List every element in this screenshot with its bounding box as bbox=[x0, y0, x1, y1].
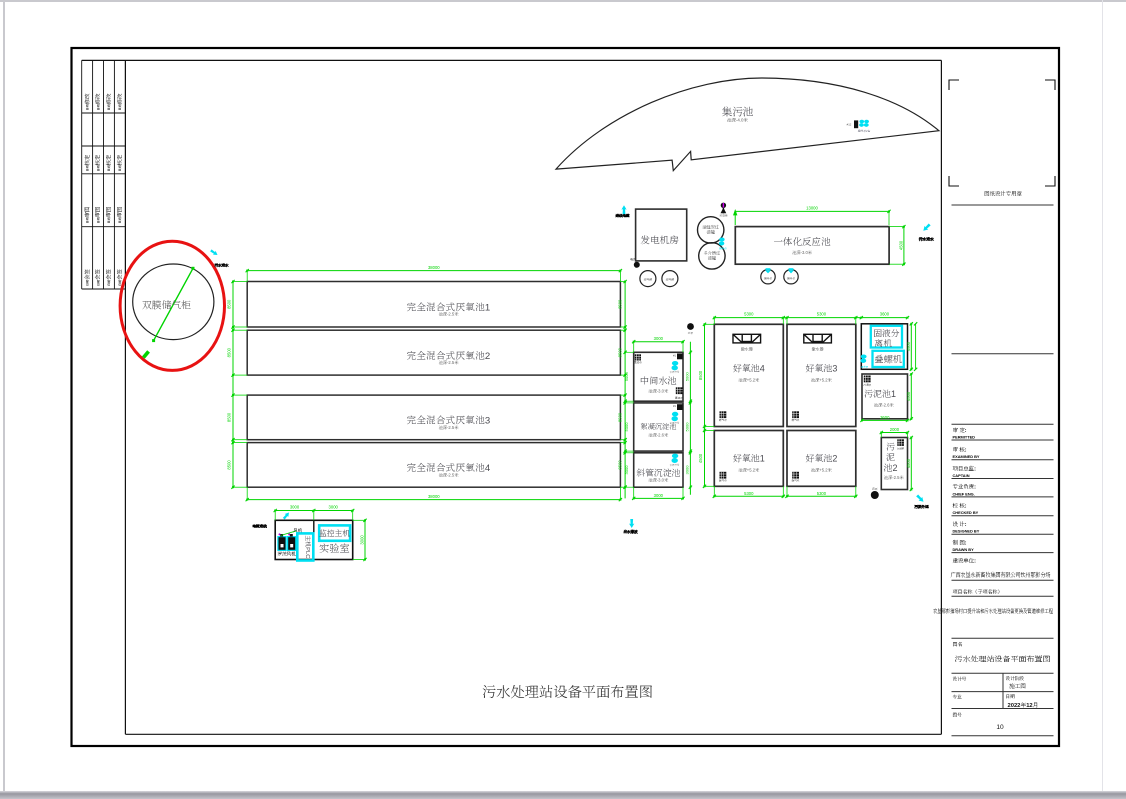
svg-text:滤罐: 滤罐 bbox=[708, 256, 717, 261]
svg-text:4500: 4500 bbox=[906, 458, 911, 468]
svg-text:13000: 13000 bbox=[806, 206, 818, 211]
svg-text:日期: 日期 bbox=[85, 280, 89, 286]
svg-text:图纸设计专用章: 图纸设计专用章 bbox=[984, 191, 1022, 198]
svg-text:3600: 3600 bbox=[880, 312, 890, 317]
svg-text:污水处理站设备平面布置图: 污水处理站设备平面布置图 bbox=[482, 684, 653, 701]
svg-text:项目总监:: 项目总监: bbox=[953, 465, 977, 472]
svg-text:中间水池: 中间水池 bbox=[640, 376, 677, 386]
svg-text:审图: 审图 bbox=[117, 206, 124, 217]
svg-text:设计号: 设计号 bbox=[952, 676, 967, 682]
svg-text:8500: 8500 bbox=[618, 347, 623, 357]
svg-text:沼气罐: 沼气罐 bbox=[644, 277, 653, 281]
svg-text:会签: 会签 bbox=[117, 269, 124, 280]
svg-text:污泵: 污泵 bbox=[871, 487, 878, 491]
svg-text:8500: 8500 bbox=[618, 460, 623, 470]
svg-text:曝气泵: 曝气泵 bbox=[719, 478, 727, 482]
svg-text:3000: 3000 bbox=[654, 493, 664, 498]
svg-text:#1: #1 bbox=[673, 355, 676, 358]
svg-text:8500: 8500 bbox=[618, 299, 623, 309]
svg-text:池深-3.0米: 池深-3.0米 bbox=[792, 250, 813, 255]
svg-text:日期: 日期 bbox=[107, 104, 111, 110]
svg-text:污泵: 污泵 bbox=[687, 331, 694, 335]
svg-text:池深-4.0米: 池深-4.0米 bbox=[727, 117, 748, 123]
svg-text:日期: 日期 bbox=[118, 104, 122, 110]
svg-text:曝气泵: 曝气泵 bbox=[792, 478, 800, 482]
svg-text:核定: 核定 bbox=[106, 154, 113, 165]
svg-text:一体化反应池: 一体化反应池 bbox=[773, 236, 831, 248]
svg-text:泥: 泥 bbox=[886, 453, 895, 463]
svg-text:图名: 图名 bbox=[953, 641, 963, 648]
svg-text:审图: 审图 bbox=[95, 206, 102, 217]
svg-text:提升泵: 提升泵 bbox=[718, 247, 727, 251]
svg-text:集污池: 集污池 bbox=[722, 105, 754, 118]
svg-text:3000: 3000 bbox=[329, 505, 339, 510]
svg-text:池深-2.6米: 池深-2.6米 bbox=[648, 433, 669, 438]
svg-text:池深-2.5米: 池深-2.5米 bbox=[439, 360, 460, 365]
svg-text:好氧池2: 好氧池2 bbox=[805, 454, 837, 464]
svg-text:5300: 5300 bbox=[744, 491, 754, 496]
svg-text:3000: 3000 bbox=[654, 336, 664, 341]
svg-text:4500: 4500 bbox=[698, 453, 703, 463]
svg-text:修改: 修改 bbox=[95, 93, 102, 104]
svg-text:5000: 5000 bbox=[624, 371, 629, 381]
svg-text:农垦那彭猪场村口提升站和污水处理站设备更换及管道维修工程: 农垦那彭猪场村口提升站和污水处理站设备更换及管道维修工程 bbox=[933, 607, 1053, 615]
svg-text:污水进水: 污水进水 bbox=[919, 237, 934, 242]
svg-text:审 核:: 审 核: bbox=[953, 447, 967, 454]
svg-text:污水处理站设备平面布置图: 污水处理站设备平面布置图 bbox=[955, 655, 1052, 664]
svg-text:好氧池4: 好氧池4 bbox=[733, 364, 765, 374]
svg-text:日期: 日期 bbox=[96, 104, 100, 110]
svg-text:DESIGNED BY: DESIGNED BY bbox=[953, 529, 980, 534]
svg-text:提升泵: 提升泵 bbox=[786, 276, 796, 280]
svg-text:水泵型号: 水泵型号 bbox=[669, 421, 680, 425]
svg-text:提升泵2台: 提升泵2台 bbox=[857, 129, 871, 133]
svg-text:日期: 日期 bbox=[96, 217, 100, 223]
svg-text:进线电缆: 进线电缆 bbox=[615, 213, 630, 218]
svg-text:沼气罐: 沼气罐 bbox=[666, 277, 675, 281]
svg-text:好氧池3: 好氧池3 bbox=[805, 364, 837, 374]
svg-text:日期: 日期 bbox=[96, 165, 100, 171]
svg-text:#12: #12 bbox=[847, 122, 852, 126]
svg-text:池深+5.2米: 池深+5.2米 bbox=[738, 378, 760, 383]
svg-text:8500: 8500 bbox=[227, 299, 232, 309]
svg-text:池深+5.2米: 池深+5.2米 bbox=[811, 468, 833, 473]
svg-text:好氧池1: 好氧池1 bbox=[733, 454, 765, 464]
svg-text:8500: 8500 bbox=[227, 347, 232, 357]
svg-text:污泥池1: 污泥池1 bbox=[864, 389, 896, 399]
svg-text:污: 污 bbox=[886, 442, 895, 452]
svg-text:会签: 会签 bbox=[95, 269, 102, 280]
svg-text:日期: 日期 bbox=[96, 280, 100, 286]
svg-text:监控主机: 监控主机 bbox=[319, 529, 350, 538]
svg-text:5300: 5300 bbox=[817, 491, 827, 496]
svg-text:双膜储气柜: 双膜储气柜 bbox=[142, 300, 191, 312]
svg-text:CAPTAIN: CAPTAIN bbox=[953, 473, 970, 478]
svg-text:5300: 5300 bbox=[817, 312, 827, 317]
svg-text:污泥泵: 污泥泵 bbox=[896, 446, 905, 450]
svg-text:修改: 修改 bbox=[84, 93, 91, 104]
svg-text:5000: 5000 bbox=[684, 371, 689, 381]
svg-text:回流泵: 回流泵 bbox=[675, 396, 683, 400]
svg-text:撒水器: 撒水器 bbox=[740, 347, 753, 352]
svg-text:曝气泵: 曝气泵 bbox=[792, 418, 800, 422]
svg-text:校 核:: 校 核: bbox=[953, 503, 967, 510]
svg-text:核定: 核定 bbox=[84, 154, 91, 165]
svg-text:实验室: 实验室 bbox=[319, 543, 350, 555]
svg-text:8500: 8500 bbox=[227, 460, 232, 470]
svg-text:离机: 离机 bbox=[875, 338, 893, 348]
svg-text:施工图: 施工图 bbox=[1009, 683, 1026, 690]
svg-text:核定: 核定 bbox=[117, 154, 124, 165]
svg-text:#1: #1 bbox=[673, 405, 676, 408]
svg-text:日期: 日期 bbox=[85, 104, 89, 110]
svg-text:3000: 3000 bbox=[624, 465, 629, 475]
svg-text:罗茨风机: 罗茨风机 bbox=[276, 551, 296, 557]
svg-text:会签: 会签 bbox=[106, 269, 113, 280]
svg-text:CHECKED BY: CHECKED BY bbox=[953, 510, 979, 515]
svg-text:电缆进线: 电缆进线 bbox=[252, 523, 267, 528]
svg-text:会签: 会签 bbox=[84, 269, 91, 280]
svg-text:EXAMINED BY: EXAMINED BY bbox=[953, 454, 980, 459]
svg-text:8500: 8500 bbox=[698, 370, 703, 380]
svg-text:提升泵: 提升泵 bbox=[860, 365, 869, 369]
svg-text:日期: 日期 bbox=[107, 165, 111, 171]
svg-text:4500: 4500 bbox=[898, 240, 903, 250]
svg-text:DRAWN BY: DRAWN BY bbox=[953, 547, 975, 552]
svg-text:38000: 38000 bbox=[428, 494, 440, 499]
svg-text:3600: 3600 bbox=[880, 415, 890, 420]
svg-text:放空阀: 放空阀 bbox=[719, 214, 728, 218]
svg-text:3000: 3000 bbox=[684, 465, 689, 475]
svg-text:电表: 电表 bbox=[630, 257, 636, 261]
svg-text:池深-2.5米: 池深-2.5米 bbox=[439, 472, 460, 477]
svg-text:5000: 5000 bbox=[624, 422, 629, 432]
svg-text:出水排放: 出水排放 bbox=[623, 529, 638, 534]
svg-text:日期: 日期 bbox=[85, 217, 89, 223]
svg-text:修改: 修改 bbox=[117, 93, 124, 104]
svg-text:池深-2.5米: 池深-2.5米 bbox=[884, 475, 905, 480]
svg-text:池2: 池2 bbox=[883, 463, 897, 473]
svg-text:建设单位:: 建设单位: bbox=[953, 558, 977, 565]
svg-text:日期: 日期 bbox=[118, 165, 122, 171]
svg-text:水泵型号: 水泵型号 bbox=[669, 463, 680, 467]
svg-text:日期: 日期 bbox=[107, 280, 111, 286]
svg-text:池深-2.6米: 池深-2.6米 bbox=[874, 403, 895, 408]
svg-text:CHIEF ENG.: CHIEF ENG. bbox=[953, 491, 975, 496]
svg-text:滤罐: 滤罐 bbox=[707, 230, 716, 235]
svg-text:发电机房: 发电机房 bbox=[640, 234, 679, 246]
svg-text:核定: 核定 bbox=[95, 154, 102, 165]
svg-text:设计阶段: 设计阶段 bbox=[1005, 675, 1025, 681]
svg-text:10: 10 bbox=[996, 724, 1004, 731]
svg-text:5300: 5300 bbox=[744, 312, 754, 317]
svg-text:撒水器: 撒水器 bbox=[811, 347, 824, 352]
svg-text:污水进水: 污水进水 bbox=[215, 263, 229, 268]
svg-text:38000: 38000 bbox=[428, 265, 440, 270]
svg-text:回流泵: 回流泵 bbox=[634, 360, 642, 364]
svg-text:叠螺机: 叠螺机 bbox=[874, 355, 902, 365]
svg-text:池深-3.0米: 池深-3.0米 bbox=[648, 477, 669, 482]
svg-text:图号: 图号 bbox=[953, 712, 963, 718]
svg-text:主机PLC: 主机PLC bbox=[304, 535, 312, 559]
svg-text:4500: 4500 bbox=[906, 341, 911, 351]
svg-text:污泥外运: 污泥外运 bbox=[914, 504, 929, 509]
svg-text:日期: 日期 bbox=[118, 217, 122, 223]
svg-text:日期: 日期 bbox=[1006, 694, 1016, 699]
svg-text:池深-3.0米: 池深-3.0米 bbox=[648, 389, 669, 394]
svg-text:PERMITTED: PERMITTED bbox=[953, 434, 976, 439]
svg-text:专业: 专业 bbox=[953, 694, 963, 700]
svg-text:制 图:: 制 图: bbox=[953, 539, 967, 546]
svg-text:修改: 修改 bbox=[106, 93, 113, 104]
svg-text:日期: 日期 bbox=[85, 165, 89, 171]
svg-text:专业负责:: 专业负责: bbox=[953, 484, 977, 491]
svg-text:3000: 3000 bbox=[360, 535, 365, 545]
svg-text:3000: 3000 bbox=[290, 505, 300, 510]
svg-text:8500: 8500 bbox=[227, 412, 232, 422]
svg-text:5000: 5000 bbox=[684, 422, 689, 432]
svg-text:项目名称（子项名称）: 项目名称（子项名称） bbox=[953, 589, 1003, 596]
svg-text:固液分: 固液分 bbox=[873, 329, 900, 339]
svg-text:2022年12月: 2022年12月 bbox=[1008, 702, 1039, 709]
svg-text:4500: 4500 bbox=[906, 391, 911, 401]
svg-text:水泵型号: 水泵型号 bbox=[669, 370, 680, 374]
svg-text:污泥泵: 污泥泵 bbox=[863, 383, 872, 387]
svg-text:池深+5.2米: 池深+5.2米 bbox=[738, 468, 760, 473]
svg-text:8500: 8500 bbox=[618, 412, 623, 422]
svg-text:池深-2.5米: 池深-2.5米 bbox=[439, 312, 460, 317]
svg-text:审图: 审图 bbox=[106, 206, 113, 217]
svg-text:池深+5.2米: 池深+5.2米 bbox=[811, 378, 833, 383]
svg-text:设 计:: 设 计: bbox=[953, 521, 967, 528]
svg-text:曝气泵: 曝气泵 bbox=[719, 418, 727, 422]
svg-text:广西农垦永新畜牧集团有限公司钦州那彭分场: 广西农垦永新畜牧集团有限公司钦州那彭分场 bbox=[951, 571, 1052, 579]
svg-text:日期: 日期 bbox=[107, 217, 111, 223]
svg-text:2000: 2000 bbox=[890, 427, 900, 432]
svg-text:池深-2.5米: 池深-2.5米 bbox=[439, 425, 460, 430]
svg-text:风机: 风机 bbox=[292, 528, 302, 533]
svg-text:审 定:: 审 定: bbox=[953, 427, 967, 434]
svg-text:审图: 审图 bbox=[84, 206, 91, 217]
svg-text:提升泵: 提升泵 bbox=[763, 276, 773, 280]
